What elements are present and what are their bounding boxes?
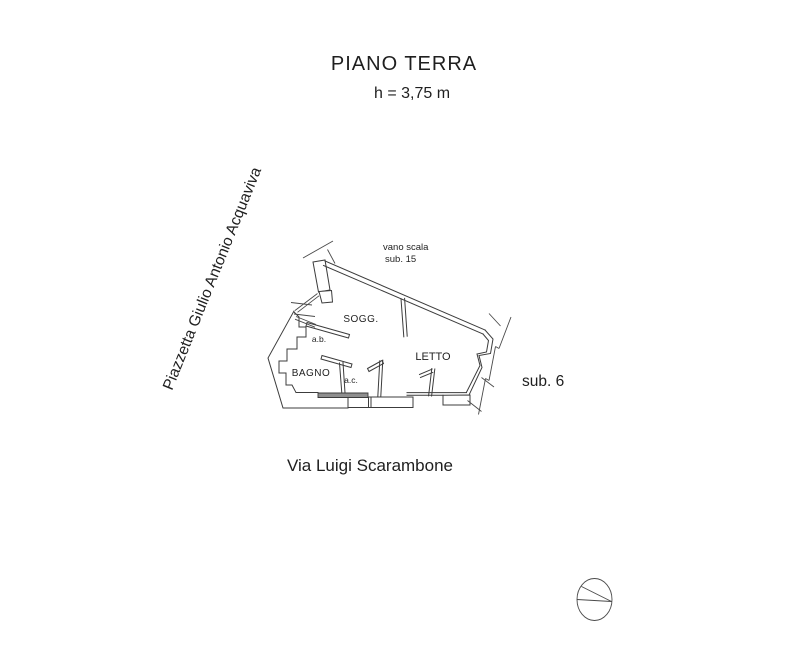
door-leaf-ac	[321, 356, 352, 368]
room-label-sogg: SOGG.	[343, 314, 378, 325]
tick-right	[468, 314, 501, 412]
room-label-ac: a.c.	[344, 375, 358, 385]
wall-bottom-right-step	[443, 395, 470, 405]
wall-right-outer	[470, 330, 494, 394]
tick-topleft	[303, 241, 335, 264]
stairwell-label-line1: vano scala	[383, 242, 429, 253]
stairwell-label-line2: sub. 15	[385, 254, 416, 265]
north-circle-symbol	[577, 579, 612, 621]
wall-bottom-middle-step	[348, 397, 413, 408]
partition-sogg-letto	[401, 298, 407, 336]
street-bottom-label: Via Luigi Scarambone	[287, 456, 453, 475]
wall-right-inner	[467, 334, 489, 392]
floorplan-drawing: PIANO TERRA h = 3,75 m Piazzetta Giulio …	[0, 0, 793, 647]
floor-height-label: h = 3,75 m	[374, 85, 450, 102]
page-title: PIANO TERRA	[331, 53, 477, 75]
door-leaf-letto	[368, 361, 384, 372]
boundary-sub6-line	[479, 317, 512, 415]
wall-party-thin	[295, 294, 319, 313]
room-label-letto: LETTO	[415, 351, 451, 363]
room-label-ab: a.b.	[312, 334, 326, 344]
street-left-label: Piazzetta Giulio Antonio Acquaviva	[160, 164, 265, 392]
plan-walls	[268, 260, 493, 408]
north-needle	[577, 587, 612, 602]
partition-letto-bottom	[420, 369, 435, 397]
wall-left-sawtooth	[279, 312, 306, 393]
wall-bottom-dark-band	[318, 393, 368, 398]
wall-topleft-notch	[319, 291, 333, 304]
wall-topleft-thick	[313, 260, 330, 292]
unit-label: sub. 6	[522, 373, 564, 390]
room-label-bagno: BAGNO	[292, 368, 331, 379]
